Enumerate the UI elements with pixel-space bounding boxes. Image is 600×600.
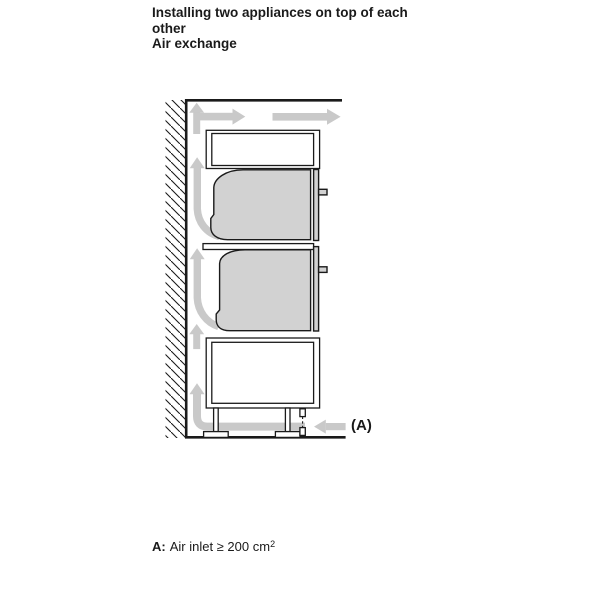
installation-diagram bbox=[0, 0, 600, 600]
air-rise-short-arrow-icon bbox=[189, 324, 204, 349]
air-inlet-arrow-icon bbox=[314, 420, 346, 434]
plinth-air-gap bbox=[300, 409, 305, 436]
legend-superscript: 2 bbox=[270, 539, 275, 549]
legend-term: A: bbox=[152, 539, 166, 554]
air-out-up-arrow-icon bbox=[189, 103, 245, 134]
upper-appliance bbox=[211, 170, 327, 241]
lower-appliance-handle bbox=[319, 267, 327, 273]
upper-appliance-front-panel bbox=[314, 170, 319, 241]
lower-appliance bbox=[216, 247, 327, 331]
air-out-right-arrow-icon bbox=[273, 109, 341, 125]
wall-hatching bbox=[166, 100, 187, 438]
base-cabinet bbox=[206, 338, 319, 408]
legend-text: Air inlet ≥ 200 cm bbox=[170, 539, 270, 554]
callout-a-label: (A) bbox=[351, 417, 372, 434]
upper-appliance-handle bbox=[319, 189, 327, 195]
legend: A:Air inlet ≥ 200 cm2 bbox=[152, 539, 275, 554]
air-rise-lower-curved-arrow-icon bbox=[190, 248, 219, 326]
lower-appliance-front-panel bbox=[314, 247, 319, 331]
divider-shelf bbox=[203, 244, 314, 250]
top-vent-compartment bbox=[206, 130, 319, 168]
